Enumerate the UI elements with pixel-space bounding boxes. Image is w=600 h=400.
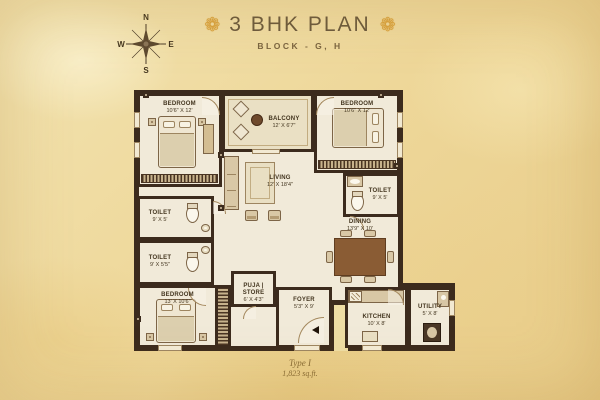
wardrobe-hatch	[141, 174, 218, 183]
washbasin-symbol	[201, 224, 210, 232]
room-label: TOILET 9' X 5'5"	[142, 255, 178, 269]
washbasin-counter-symbol	[347, 176, 363, 187]
dining-area-label: DINING 13'9" X 10'	[328, 219, 392, 233]
nightstand-symbol	[148, 118, 156, 126]
window-symbol	[134, 112, 140, 128]
wall-marker-symbol	[143, 92, 149, 98]
washbasin-symbol	[201, 246, 210, 254]
pillow-symbol	[372, 113, 379, 125]
wardrobe-hatch	[318, 160, 396, 169]
pillow-symbol	[163, 121, 175, 128]
blanket-symbol	[158, 316, 194, 341]
room-label: BEDROOM 10'6" X 12'	[140, 101, 219, 115]
blanket-symbol	[334, 110, 367, 146]
entrance-opening	[294, 345, 320, 351]
page-background: N E S W ❁ 3 BHK PLAN ❁ BLOCK - G, H BEDR…	[0, 0, 600, 400]
plan-area-label: 1,823 sq.ft.	[0, 369, 600, 378]
ornament-right-icon: ❁	[380, 16, 396, 35]
dining-table-symbol	[334, 238, 386, 276]
wall-marker-symbol	[218, 152, 224, 158]
washing-machine-symbol	[423, 323, 441, 342]
plan-type-label: Type I	[0, 358, 600, 368]
bed-symbol	[156, 299, 196, 343]
nightstand-symbol	[199, 333, 207, 341]
chair-symbol	[245, 210, 258, 221]
entrance-arrow-icon	[312, 326, 319, 334]
wall-marker-symbol	[394, 163, 400, 169]
living-area-label: LIVING 12' X 18'4"	[248, 175, 312, 189]
room-label: KITCHEN 10' X 8'	[348, 314, 405, 328]
room-label: BEDROOM 13' X 10'6"	[140, 292, 215, 306]
ornament-left-icon: ❁	[204, 16, 220, 35]
room-label: BEDROOM 10'6" X 12'	[317, 101, 397, 115]
pillow-symbol	[372, 131, 379, 143]
page-title: 3 BHK PLAN	[229, 13, 370, 37]
window-symbol	[158, 345, 182, 351]
kitchen-sink-symbol	[349, 291, 362, 302]
chair-symbol	[340, 276, 352, 283]
dresser-symbol	[203, 124, 214, 154]
blanket-symbol	[160, 133, 194, 166]
pillow-symbol	[179, 121, 191, 128]
title-block: ❁ 3 BHK PLAN ❁ BLOCK - G, H	[0, 13, 600, 51]
wall-marker-symbol	[218, 205, 224, 211]
compass-south-label: S	[143, 66, 149, 75]
wall-marker-symbol	[378, 92, 384, 98]
bed-symbol	[158, 116, 196, 168]
block-subtitle: BLOCK - G, H	[0, 41, 600, 51]
room-toilet-left-top: TOILET 9' X 5'	[137, 196, 214, 240]
chair-symbol	[364, 276, 376, 283]
room-label: TOILET 9' X 5'	[365, 188, 395, 202]
window-symbol	[397, 142, 403, 158]
room-label: FOYER 5'3" X 9'	[279, 297, 329, 311]
window-symbol	[397, 112, 403, 128]
chair-symbol	[326, 251, 333, 263]
room-label: UTILITY 5' X 8'	[411, 304, 449, 318]
chair-symbol	[268, 210, 281, 221]
room-label: PUJA | STORE 6' X 4'3"	[234, 283, 273, 304]
room-balcony: BALCONY 12' X 6'7"	[222, 93, 314, 152]
window-symbol	[134, 142, 140, 158]
room-label: BALCONY 12' X 6'7"	[259, 116, 309, 130]
room-puja-store: PUJA | STORE 6' X 4'3"	[231, 271, 276, 307]
window-symbol	[362, 345, 382, 351]
balcony-slider-door-symbol	[252, 149, 280, 154]
wardrobe-hatch	[215, 285, 231, 348]
room-label: TOILET 9' X 5'	[142, 210, 178, 224]
sofa-symbol	[224, 156, 239, 210]
wall-marker-symbol	[135, 316, 141, 322]
stove-symbol	[362, 331, 378, 342]
nightstand-symbol	[146, 333, 154, 341]
window-symbol	[449, 300, 455, 316]
chair-symbol	[387, 251, 394, 263]
plan-caption: Type I 1,823 sq.ft.	[0, 358, 600, 378]
